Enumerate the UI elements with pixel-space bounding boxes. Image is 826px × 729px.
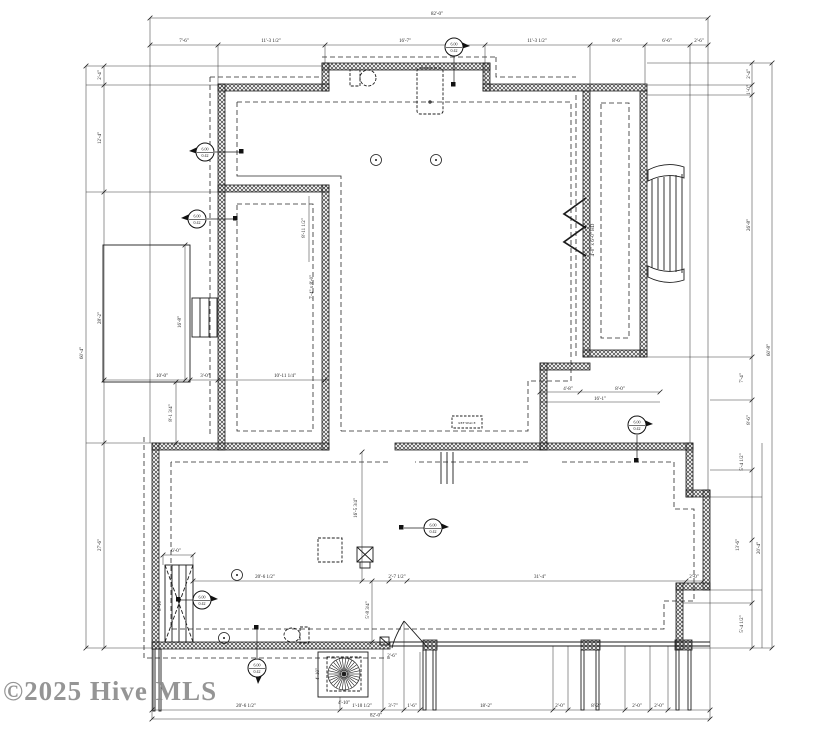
dimension-label: 6'-0"	[171, 549, 181, 554]
dimension-label: 31'-4"	[534, 575, 546, 580]
svg-text:6.00: 6.00	[254, 663, 261, 668]
dimension-label: 6'-6"	[662, 39, 672, 44]
dimension-label: 2'-4"	[98, 70, 103, 80]
svg-text:6.00: 6.00	[194, 214, 201, 219]
dimension-label: 2'-0"	[632, 704, 642, 709]
porch-posts	[153, 649, 691, 711]
dimension-label: 60'-4"	[80, 347, 85, 359]
toilet-top	[350, 70, 376, 86]
dimension-label: 3'-0"	[200, 374, 210, 379]
dimension-labels: 82'-0"7'-6"11'-3 1/2"16'-7"11'-3 1/2"8'-…	[80, 12, 772, 719]
svg-text:6.00: 6.00	[202, 147, 209, 152]
callout-marker: 6.000.42	[628, 416, 653, 434]
callout-marker: 6.000.42	[193, 591, 218, 609]
dimension-label: 8'-2"	[591, 704, 601, 709]
tub	[417, 68, 443, 114]
exterior-walls	[152, 63, 710, 650]
dimension-label: 82'-0"	[370, 714, 382, 719]
callout-markers: 6.000.426.000.426.000.426.000.426.000.42…	[181, 38, 653, 684]
floor-plan-page: 6.000.426.000.426.000.426.000.426.000.42…	[0, 0, 826, 729]
pantry-partition	[441, 452, 453, 484]
dimension-label: 28'-2"	[98, 312, 103, 324]
side-steps	[192, 298, 217, 337]
dimension-label: 2'-0"	[689, 575, 699, 580]
dimension-label: 13'-6"	[736, 539, 741, 551]
kitchen-island	[318, 538, 342, 562]
ac-condenser	[318, 652, 368, 697]
svg-text:0.42: 0.42	[430, 529, 437, 534]
callout-marker: 6.000.42	[248, 659, 266, 684]
dimension-label: 10'-11 1/4"	[274, 374, 296, 379]
dimension-label: 82'-0"	[431, 12, 443, 17]
dashed-outlines	[144, 57, 694, 658]
dimension-label: 8'-10"	[158, 599, 163, 611]
dimension-label: 10'-0"	[156, 374, 168, 379]
dimension-label: 5'-8 3/4"	[366, 601, 371, 618]
ac-fan-icon	[328, 658, 360, 690]
dimension-label: 16'-5 3/4"	[354, 498, 359, 518]
dimension-label: 3'-7"	[388, 704, 398, 709]
ceiling-fixture-symbols	[219, 155, 442, 644]
dimension-label: 26'-8"	[747, 219, 752, 231]
dimension-label: 16'-7"	[399, 39, 411, 44]
dimension-label: 12'-4"	[98, 132, 103, 144]
dimension-label: 16'-8"	[178, 316, 183, 328]
curved-steps	[648, 165, 684, 283]
dimension-label: 1'-0"	[747, 85, 752, 95]
dimension-label: 16'-1"	[594, 397, 606, 402]
svg-text:6.00: 6.00	[430, 523, 437, 528]
dimension-label: 27'-6"	[98, 539, 103, 551]
svg-text:0.42: 0.42	[194, 220, 201, 225]
svg-text:6.00: 6.00	[634, 420, 641, 425]
dimension-label: 4'-8"	[563, 387, 573, 392]
porch-beam	[390, 642, 710, 646]
dimension-label: 11'-3 1/2"	[261, 39, 281, 44]
kitchen-sink	[357, 547, 373, 568]
dimension-label: 11'-3 1/2"	[527, 39, 547, 44]
dimension-label: 7'-4"	[740, 373, 745, 383]
dimension-label: 8'-6"	[612, 39, 622, 44]
dimension-label: 7'-6"	[179, 39, 189, 44]
dimension-label: 8'-11 1/2"	[302, 218, 307, 238]
dimension-label: 60'-8"	[767, 344, 772, 356]
svg-text:0.42: 0.42	[202, 153, 209, 158]
dimension-label: 8'-6"	[747, 415, 752, 425]
dimension-label: 2'-6"	[387, 654, 397, 659]
callout-marker: 6.000.42	[181, 210, 206, 228]
dimension-label: 2'-0"	[555, 704, 565, 709]
dimension-extension-lines	[84, 16, 775, 722]
dimension-label: 4'-10"	[316, 668, 321, 680]
dimension-label: 4'-0" x 6'-0" HD	[591, 223, 596, 256]
svg-text:0.42: 0.42	[199, 601, 206, 606]
ref-space-label: REF SPACE	[458, 421, 475, 425]
svg-text:6.00: 6.00	[199, 595, 206, 600]
dimension-label: 1'-10 1/2"	[352, 704, 372, 709]
svg-text:6.00: 6.00	[451, 42, 458, 47]
callout-leaders	[176, 57, 639, 658]
dimension-label: 20'-6 1/2"	[236, 704, 256, 709]
callout-marker: 6.000.42	[424, 519, 449, 537]
dimension-label: 2'-0"	[654, 704, 664, 709]
dimension-label: 2'-4"	[747, 69, 752, 79]
dimension-label: 18'-2"	[480, 704, 492, 709]
dimension-label: 20'-6 1/2"	[255, 575, 275, 580]
dimension-label: 8'-1 3/4"	[169, 404, 174, 421]
stairs	[165, 565, 193, 642]
dimension-label: 8'-0"	[615, 387, 625, 392]
dimension-label: 2'-7 1/2"	[388, 575, 405, 580]
dimension-label: 5'-4 1/2"	[740, 453, 745, 470]
dimension-label: 2'-6"	[694, 39, 704, 44]
callout-marker: 6.000.42	[189, 143, 214, 161]
callout-marker: 6.000.42	[445, 38, 470, 56]
floor-plan-drawing: 6.000.426.000.426.000.426.000.426.000.42…	[0, 0, 826, 729]
svg-text:0.42: 0.42	[451, 48, 458, 53]
left-patio-slab	[103, 245, 190, 382]
dimension-label: 20'-4"	[757, 542, 762, 554]
dimension-label: 1'-6"	[407, 704, 417, 709]
dimension-label: 7'-4" x 8'-0"	[310, 275, 315, 299]
svg-text:0.42: 0.42	[634, 426, 641, 431]
dimension-label: 5'-4 1/2"	[740, 615, 745, 632]
svg-text:0.42: 0.42	[254, 669, 261, 674]
dimension-label: 4'-10"	[338, 701, 350, 706]
mls-watermark: ©2025 Hive MLS	[3, 676, 217, 707]
